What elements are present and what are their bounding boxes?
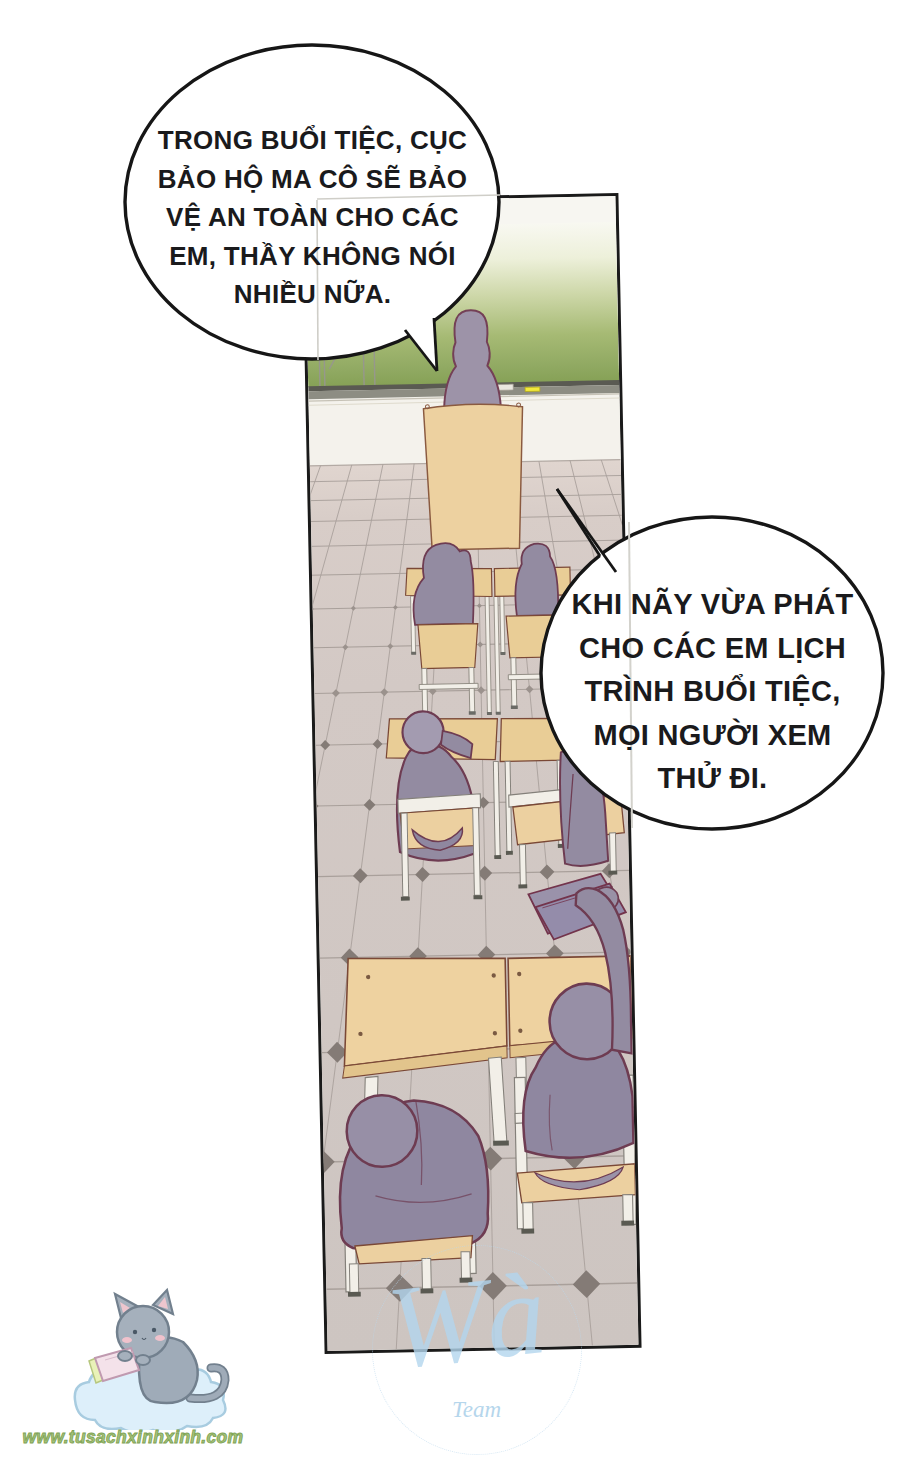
bubble-line: TRÌNH BUỔI TIỆC, <box>540 670 885 714</box>
cat-paw <box>118 1351 132 1361</box>
bubble-line: CHO CÁC EM LỊCH <box>540 627 885 671</box>
bubble-line: TRONG BUỔI TIỆC, CỤC <box>140 121 485 160</box>
bubble-line: BẢO HỘ MA CÔ SẼ BẢO <box>140 160 485 199</box>
cat-mascot-icon <box>55 1280 245 1430</box>
speech-bubble-2-text: KHI NÃY VỪA PHÁT CHO CÁC EM LỊCH TRÌNH B… <box>540 583 885 801</box>
speech-bubble-1-text: TRONG BUỔI TIỆC, CỤC BẢO HỘ MA CÔ SẼ BẢO… <box>140 121 485 314</box>
podium <box>423 403 525 550</box>
bubble-line: NHIỀU NỮA. <box>140 275 485 314</box>
bubble-line: VỆ AN TOÀN CHO CÁC <box>140 198 485 237</box>
bubble-line: KHI NÃY VỪA PHÁT <box>540 583 885 627</box>
bubble-line: EM, THẦY KHÔNG NÓI <box>140 237 485 276</box>
cat-paw <box>136 1355 150 1365</box>
bubble-line: MỌI NGƯỜI XEM <box>540 714 885 758</box>
site-url-watermark: www.tusachxinhxinh.com <box>14 1427 252 1448</box>
bubble-line: THỬ ĐI. <box>540 757 885 801</box>
comic-page: TRONG BUỔI TIỆC, CỤC BẢO HỘ MA CÔ SẼ BẢO… <box>0 0 900 1457</box>
team-label: Team <box>452 1397 501 1423</box>
yellow-chalk <box>525 387 540 391</box>
